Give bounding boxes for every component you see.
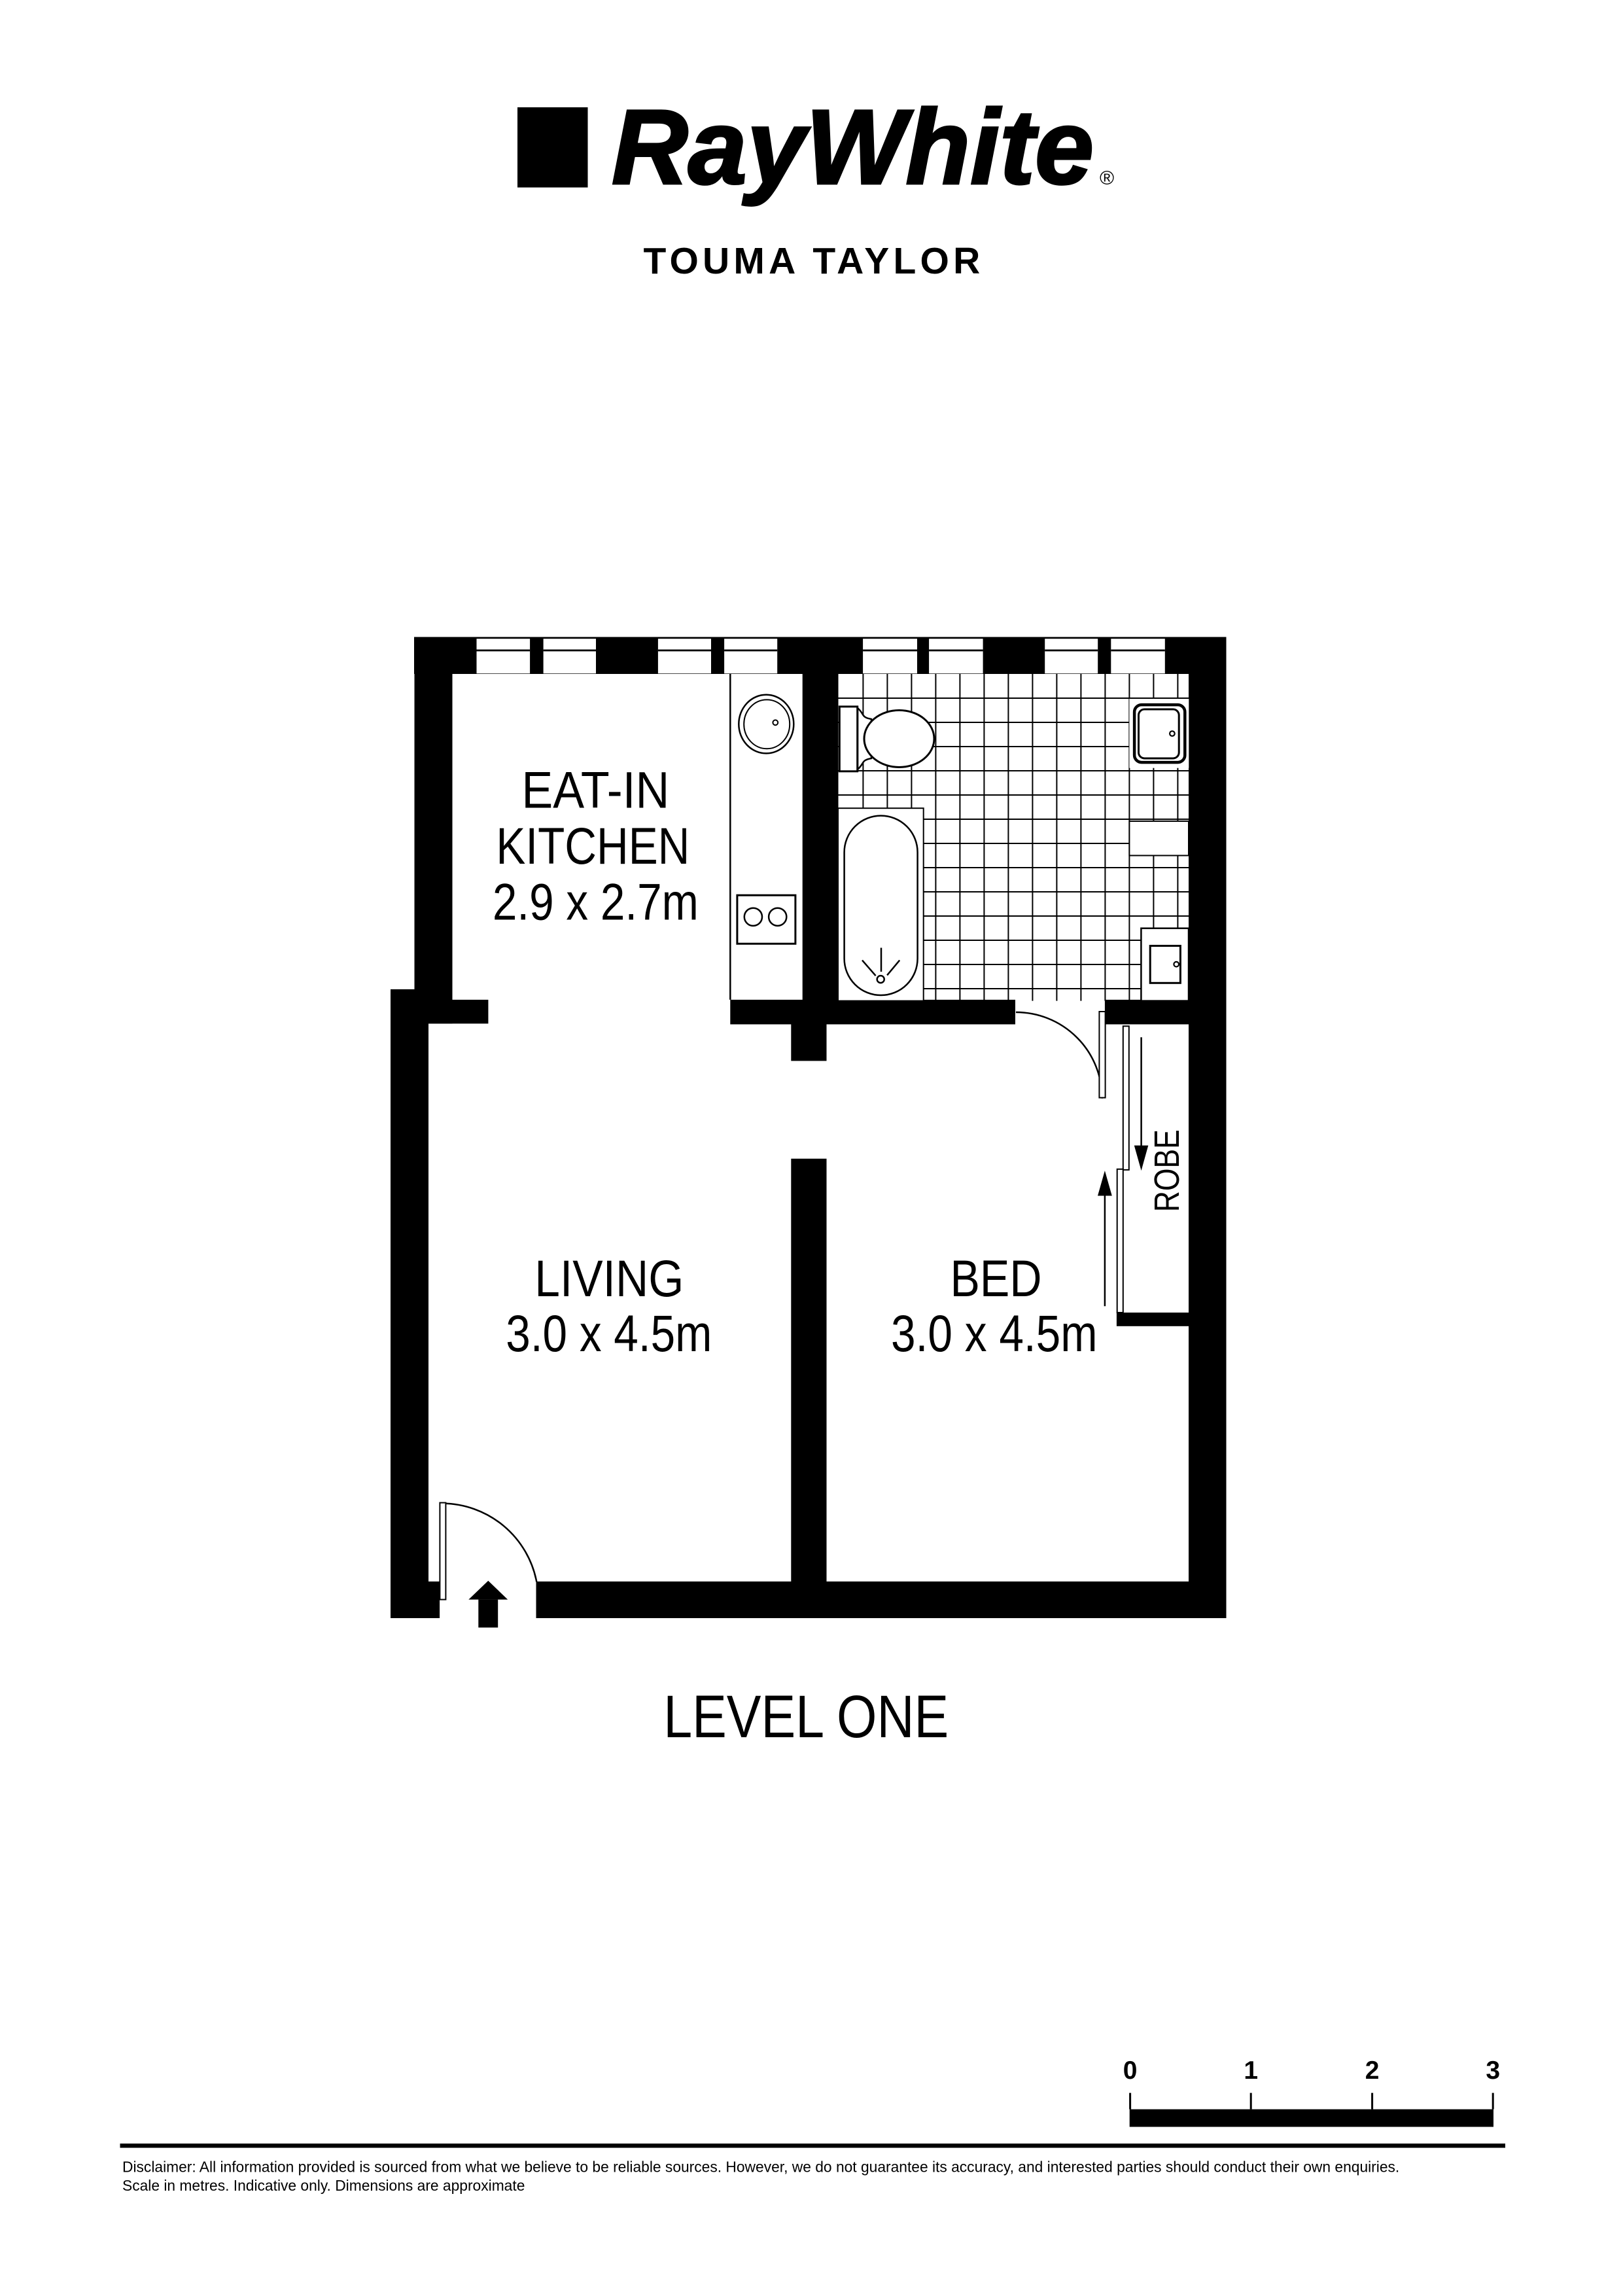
svg-text:3.0 x 4.5m: 3.0 x 4.5m bbox=[506, 1304, 712, 1362]
svg-text:LEVEL ONE: LEVEL ONE bbox=[663, 1684, 949, 1750]
svg-text:®: ® bbox=[1100, 168, 1114, 189]
svg-text:1: 1 bbox=[1244, 2057, 1258, 2085]
svg-text:2: 2 bbox=[1365, 2057, 1380, 2085]
svg-text:0: 0 bbox=[1123, 2057, 1138, 2085]
svg-text:KITCHEN: KITCHEN bbox=[496, 817, 689, 875]
svg-text:3.0 x 4.5m: 3.0 x 4.5m bbox=[891, 1304, 1098, 1362]
svg-text:Scale in metres. Indicative on: Scale in metres. Indicative only. Dimens… bbox=[122, 2177, 525, 2194]
svg-text:ROBE: ROBE bbox=[1147, 1129, 1187, 1212]
svg-text:EAT-IN: EAT-IN bbox=[521, 760, 669, 819]
svg-text:LIVING: LIVING bbox=[534, 1249, 684, 1307]
svg-text:BED: BED bbox=[951, 1249, 1042, 1307]
svg-text:TOUMA TAYLOR: TOUMA TAYLOR bbox=[644, 240, 985, 282]
svg-text:3: 3 bbox=[1486, 2057, 1500, 2085]
svg-text:2.9 x 2.7m: 2.9 x 2.7m bbox=[493, 872, 699, 930]
svg-text:RayWhite: RayWhite bbox=[612, 88, 1094, 207]
svg-text:Disclaimer: All information pr: Disclaimer: All information provided is … bbox=[122, 2158, 1399, 2175]
